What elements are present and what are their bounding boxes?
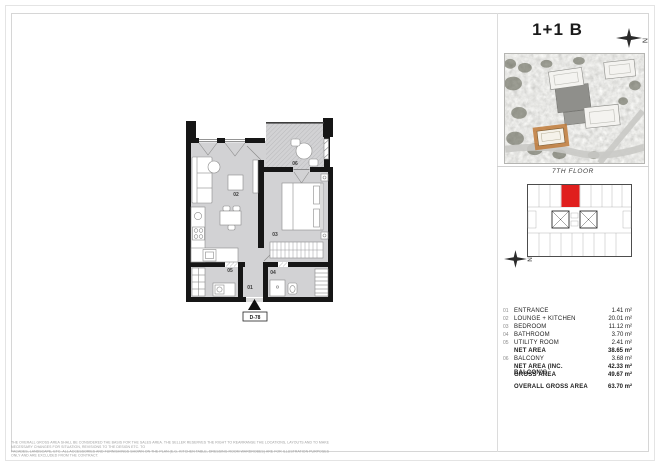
row-label: OVERALL GROSS AREA xyxy=(514,384,596,390)
row-number: 01 xyxy=(503,308,514,314)
highlighted-building xyxy=(533,124,570,151)
row-label: BEDROOM xyxy=(514,324,596,330)
table-row-net-area: NET AREA 38.65 m² xyxy=(503,348,632,356)
row-value: 42.33 m² xyxy=(596,364,632,370)
keyplan-compass-n-label: N xyxy=(525,257,532,261)
row-number: 03 xyxy=(503,324,514,330)
row-label: NET AREA xyxy=(514,348,596,354)
floor-key-title: 7TH FLOOR xyxy=(497,168,649,175)
table-row: 04 BATHROOM 3.70 m² xyxy=(503,332,632,340)
row-number: 04 xyxy=(503,332,514,338)
table-row: 02 LOUNGE + KITCHEN 20.01 m² xyxy=(503,316,632,324)
room-label-bedroom: 03 xyxy=(272,232,278,238)
row-value: 11.12 m² xyxy=(596,324,632,330)
row-number: 02 xyxy=(503,316,514,322)
table-row: 01 ENTRANCE 1.41 m² xyxy=(503,308,632,316)
row-label: LOUNGE + KITCHEN xyxy=(514,316,596,322)
row-number: 05 xyxy=(503,340,514,346)
room-label-lounge: 02 xyxy=(233,192,239,198)
panel-divider xyxy=(497,13,498,452)
row-value: 63.70 m² xyxy=(596,384,632,390)
row-value: 20.01 m² xyxy=(596,316,632,322)
row-label: ENTRANCE xyxy=(514,308,596,314)
area-table: 01 ENTRANCE 1.41 m² 02 LOUNGE + KITCHEN … xyxy=(503,308,632,392)
row-label: BALCONY xyxy=(514,356,596,362)
row-value: 38.65 m² xyxy=(596,348,632,354)
table-row: 03 BEDROOM 11.12 m² xyxy=(503,324,632,332)
floor-plan: 02 03 06 05 04 01 D-78 xyxy=(183,115,335,330)
disclaimer-text: THE OVERALL GROSS AREA SHALL BE CONSIDER… xyxy=(11,441,336,459)
row-value: 2.41 m² xyxy=(596,340,632,346)
table-row-overall-gross-area: OVERALL GROSS AREA 63.70 m² xyxy=(503,384,632,392)
page-title: 1+1 B xyxy=(505,20,610,40)
room-label-entrance: 01 xyxy=(247,285,253,291)
unit-code: D-78 xyxy=(250,315,261,321)
row-value: 49.67 m² xyxy=(596,372,632,378)
keyplan-compass-north-icon: N xyxy=(504,246,534,277)
site-aerial-image xyxy=(504,53,645,164)
row-label: BATHROOM xyxy=(514,332,596,338)
table-row-net-area-balcony: NET AREA (INC. BALCONY) 42.33 m² xyxy=(503,364,632,372)
section-divider xyxy=(497,166,649,167)
row-value: 3.68 m² xyxy=(596,356,632,362)
row-value: 3.70 m² xyxy=(596,332,632,338)
disclaimer-line-1: THE OVERALL GROSS AREA SHALL BE CONSIDER… xyxy=(11,441,336,450)
row-value: 1.41 m² xyxy=(596,308,632,314)
compass-n-label: N xyxy=(641,38,648,43)
table-row: 05 UTILITY ROOM 2.41 m² xyxy=(503,340,632,348)
highlighted-unit xyxy=(562,185,580,207)
row-number: 06 xyxy=(503,356,514,362)
table-row: 06 BALCONY 3.68 m² xyxy=(503,356,632,364)
room-label-balcony: 06 xyxy=(292,161,298,167)
room-label-bathroom: 04 xyxy=(270,270,276,276)
row-label: UTILITY ROOM xyxy=(514,340,596,346)
room-label-utility: 05 xyxy=(227,268,233,274)
table-row-gross-area: GROSS AREA 49.67 m² xyxy=(503,372,632,380)
disclaimer-line-2: FACADES, LANDSCAPE, ETC. ALL ACCESSORIES… xyxy=(11,450,336,459)
floor-key-plan xyxy=(527,184,632,262)
row-label: GROSS AREA xyxy=(514,372,596,378)
plan-sheet: 02 03 06 05 04 01 D-78 1+1 B N xyxy=(0,0,660,466)
